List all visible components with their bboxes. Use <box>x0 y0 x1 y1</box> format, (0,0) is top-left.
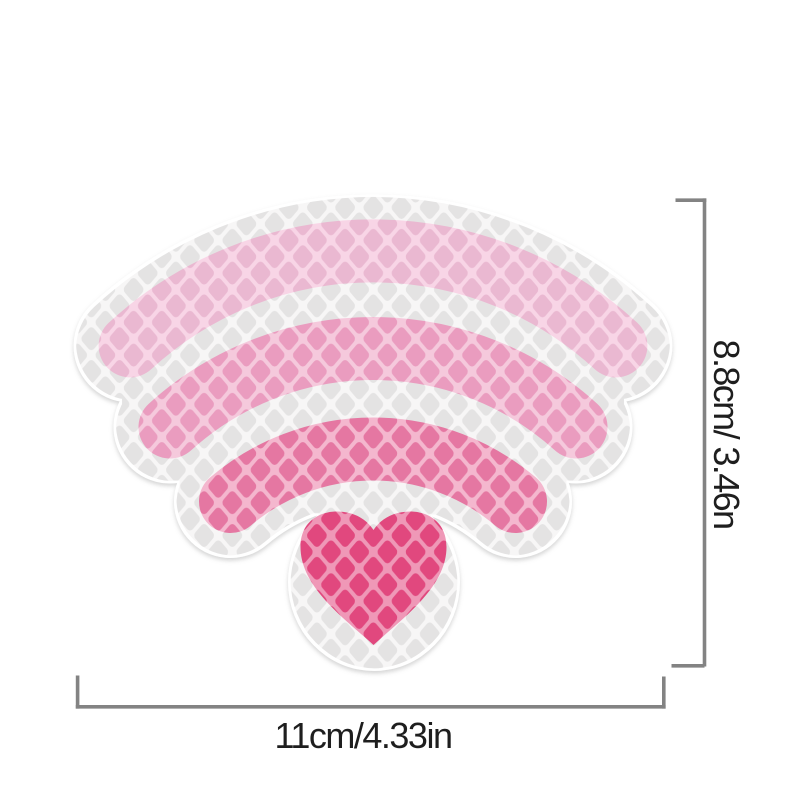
svg-text:11cm/4.33in: 11cm/4.33in <box>275 715 452 756</box>
svg-text:8.8cm/ 3.46n: 8.8cm/ 3.46n <box>706 340 747 529</box>
